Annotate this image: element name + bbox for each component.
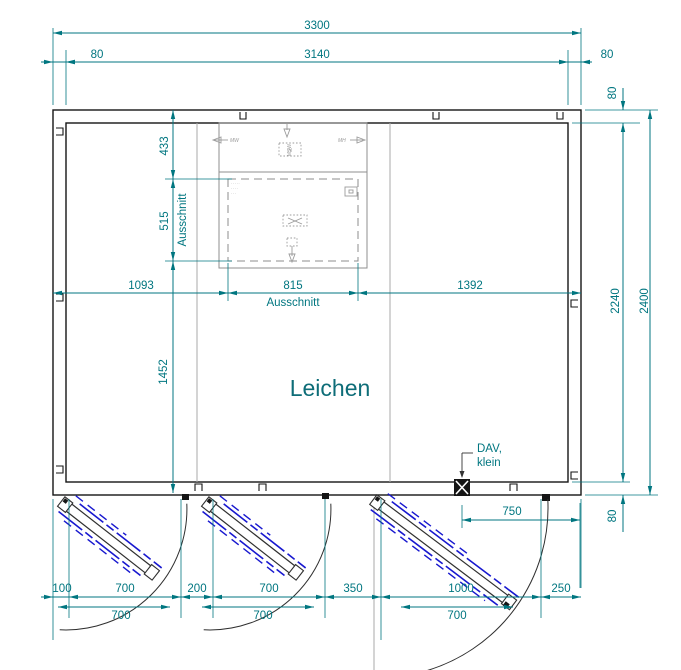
dim-bottom-1000: 1000 [448,583,474,595]
dim-chain-1452: 1452 [158,359,170,385]
dim-door2-700: 700 [253,610,272,622]
dim-bottom-700b: 700 [259,583,278,595]
dim-right-wall-bottom: 80 [607,510,619,523]
label-ausschnitt-vertical: Ausschnitt [177,193,189,247]
label-ausschnitt-horizontal: Ausschnitt [266,297,320,309]
dim-chain-433: 433 [159,136,171,155]
room-label: Leichen [290,375,371,401]
dim-bottom-200: 200 [187,583,206,595]
dim-right-overall: 2400 [639,288,651,314]
annotation-left-label: MW [230,138,240,144]
dim-chain-515: 515 [159,211,171,230]
dim-bottom-100: 100 [52,583,71,595]
dim-bottom-700a: 700 [115,583,134,595]
dim-right-wall-top: 80 [607,87,619,100]
dim-bottom-350: 350 [343,583,362,595]
dav-callout: DAV, klein [454,443,502,496]
dimension-bottom-row2: 700 700 700 [58,605,513,622]
dimension-left-chain: 433 515 Ausschnitt 1452 [158,110,232,493]
dim-815: 815 [283,280,302,292]
dim-door1-700: 700 [111,610,130,622]
annotation-box-label: N [288,148,292,154]
dim-top-overall: 3300 [304,20,330,32]
dim-top-inner: 3140 [304,49,330,61]
dimension-750: 750 [462,503,580,588]
dimension-top: 3300 3140 80 80 [41,20,613,105]
dav-label-line2: klein [477,457,501,469]
dim-wall-right: 80 [601,49,614,61]
cutout-note-line3: ··· [231,191,237,196]
dim-1392: 1392 [457,280,483,292]
door-strike-blocks [182,493,550,501]
dim-right-inner: 2240 [610,288,622,314]
dim-wall-left: 80 [91,49,104,61]
dim-750: 750 [502,506,521,518]
floor-plan-drawing: MW MH MSW N ····· ···· ··· [0,0,681,670]
dim-door3-700: 700 [447,610,466,622]
annotation-right-label: MH [338,138,346,144]
dim-1093: 1093 [128,280,154,292]
unit-annotations: MW MH MSW N ····· ···· ··· [213,123,365,262]
dimension-right: 80 2240 2400 80 [572,87,658,532]
dav-label-line1: DAV, [477,443,502,455]
dimension-middle-chain: 1093 815 Ausschnitt 1392 [53,263,581,309]
dim-bottom-250: 250 [551,583,570,595]
